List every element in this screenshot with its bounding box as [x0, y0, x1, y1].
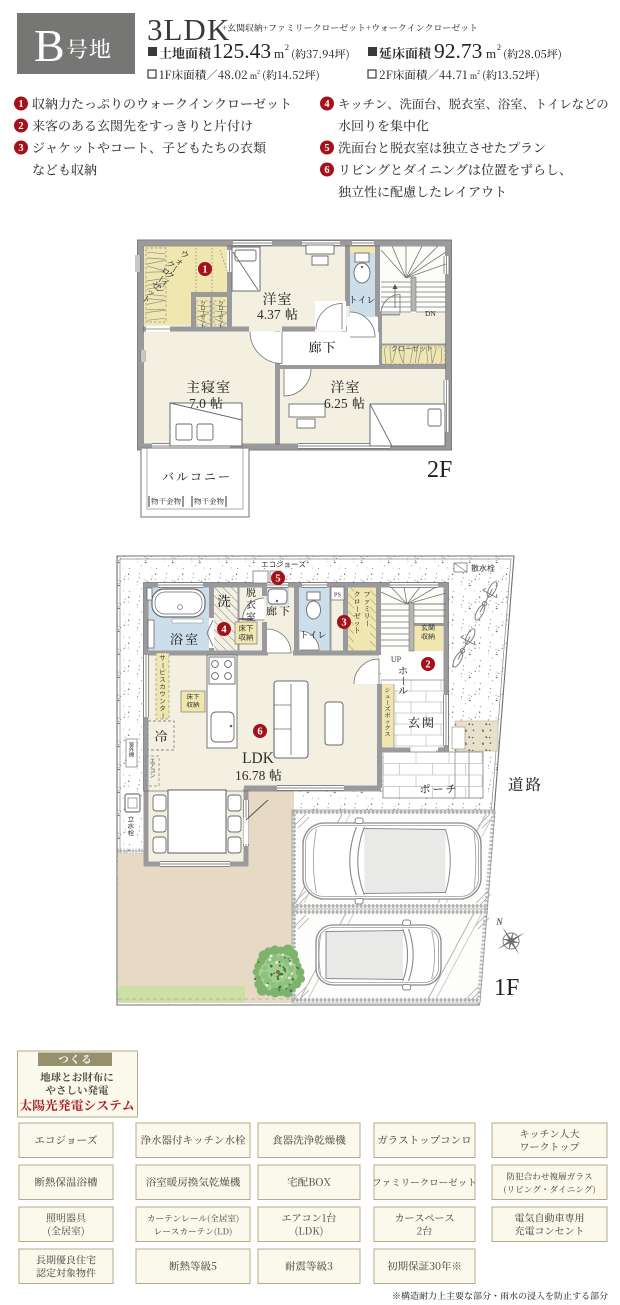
svg-text:2: 2: [477, 70, 480, 76]
svg-text:DN: DN: [425, 309, 436, 318]
svg-text:125.43: 125.43: [212, 39, 271, 63]
svg-text:3: 3: [18, 143, 23, 154]
svg-text:1: 1: [18, 99, 23, 110]
svg-text:m: m: [470, 71, 477, 81]
svg-text:2: 2: [18, 121, 23, 132]
svg-text:m: m: [250, 71, 257, 81]
svg-text:4: 4: [221, 625, 227, 636]
svg-text:N: N: [495, 917, 503, 927]
svg-text:4: 4: [324, 99, 330, 110]
svg-text:2: 2: [497, 43, 501, 52]
svg-text:PS: PS: [334, 592, 342, 599]
svg-text:1: 1: [202, 265, 207, 276]
svg-text:6: 6: [257, 727, 262, 738]
svg-text:92.73: 92.73: [434, 39, 482, 63]
svg-text:m: m: [274, 46, 284, 61]
svg-text:2: 2: [285, 43, 289, 52]
svg-text:1F: 1F: [494, 975, 519, 1001]
svg-text:m: m: [486, 46, 496, 61]
svg-text:3: 3: [341, 618, 346, 629]
svg-text:UP: UP: [391, 655, 402, 664]
svg-text:4.37: 4.37: [257, 307, 281, 322]
svg-text:LDK: LDK: [242, 750, 275, 767]
svg-text:2: 2: [425, 660, 430, 671]
svg-text:2: 2: [257, 70, 260, 76]
svg-text:5: 5: [324, 143, 329, 154]
svg-text:5: 5: [275, 574, 280, 585]
svg-text:7.0: 7.0: [189, 396, 206, 411]
svg-text:2F: 2F: [427, 457, 452, 483]
svg-text:16.78: 16.78: [235, 768, 266, 783]
svg-text:6: 6: [324, 165, 329, 176]
svg-text:B: B: [34, 20, 65, 71]
svg-text:6.25: 6.25: [324, 396, 348, 411]
